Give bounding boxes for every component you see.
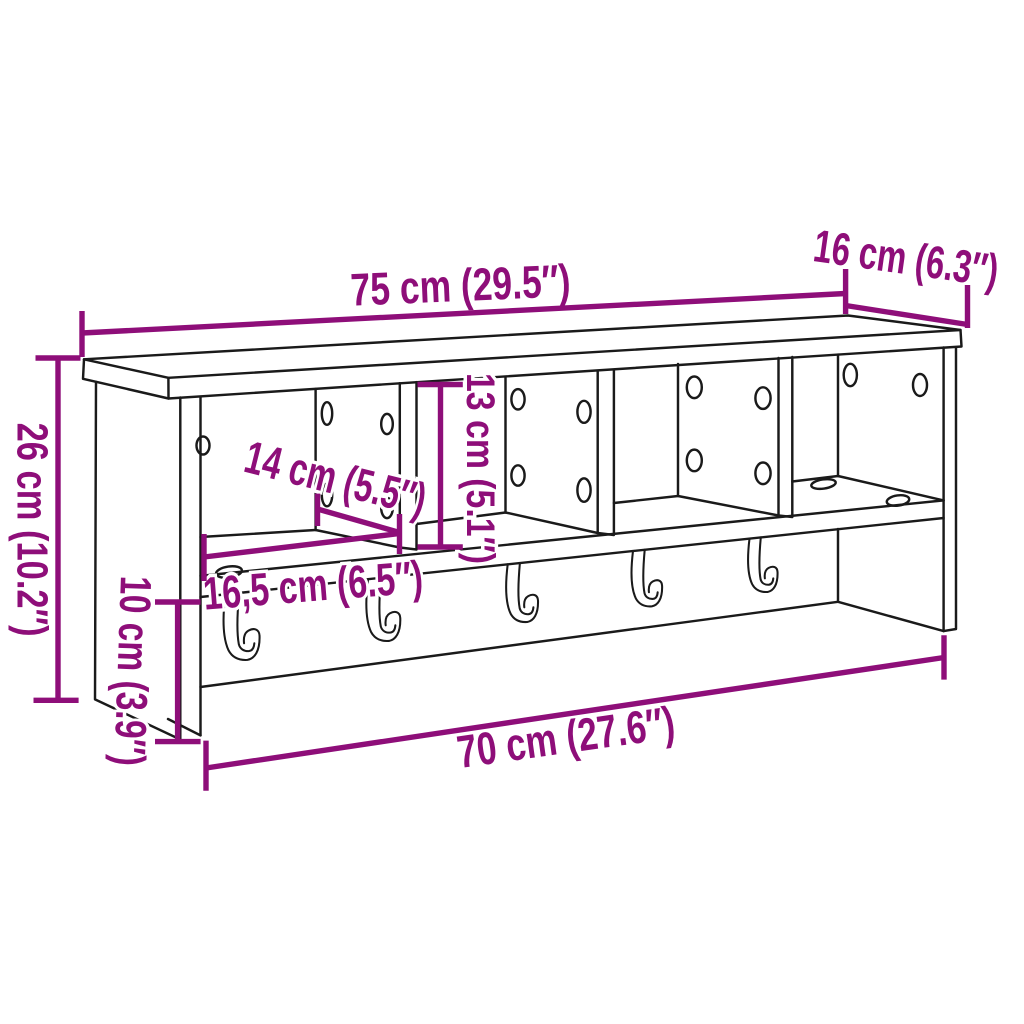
svg-text:13 cm (5.1″): 13 cm (5.1″) xyxy=(458,373,502,564)
svg-text:10 cm (3.9″): 10 cm (3.9″) xyxy=(104,575,160,767)
svg-text:26 cm (10.2″): 26 cm (10.2″) xyxy=(8,423,57,637)
svg-text:75 cm (29.5″): 75 cm (29.5″) xyxy=(349,254,571,316)
